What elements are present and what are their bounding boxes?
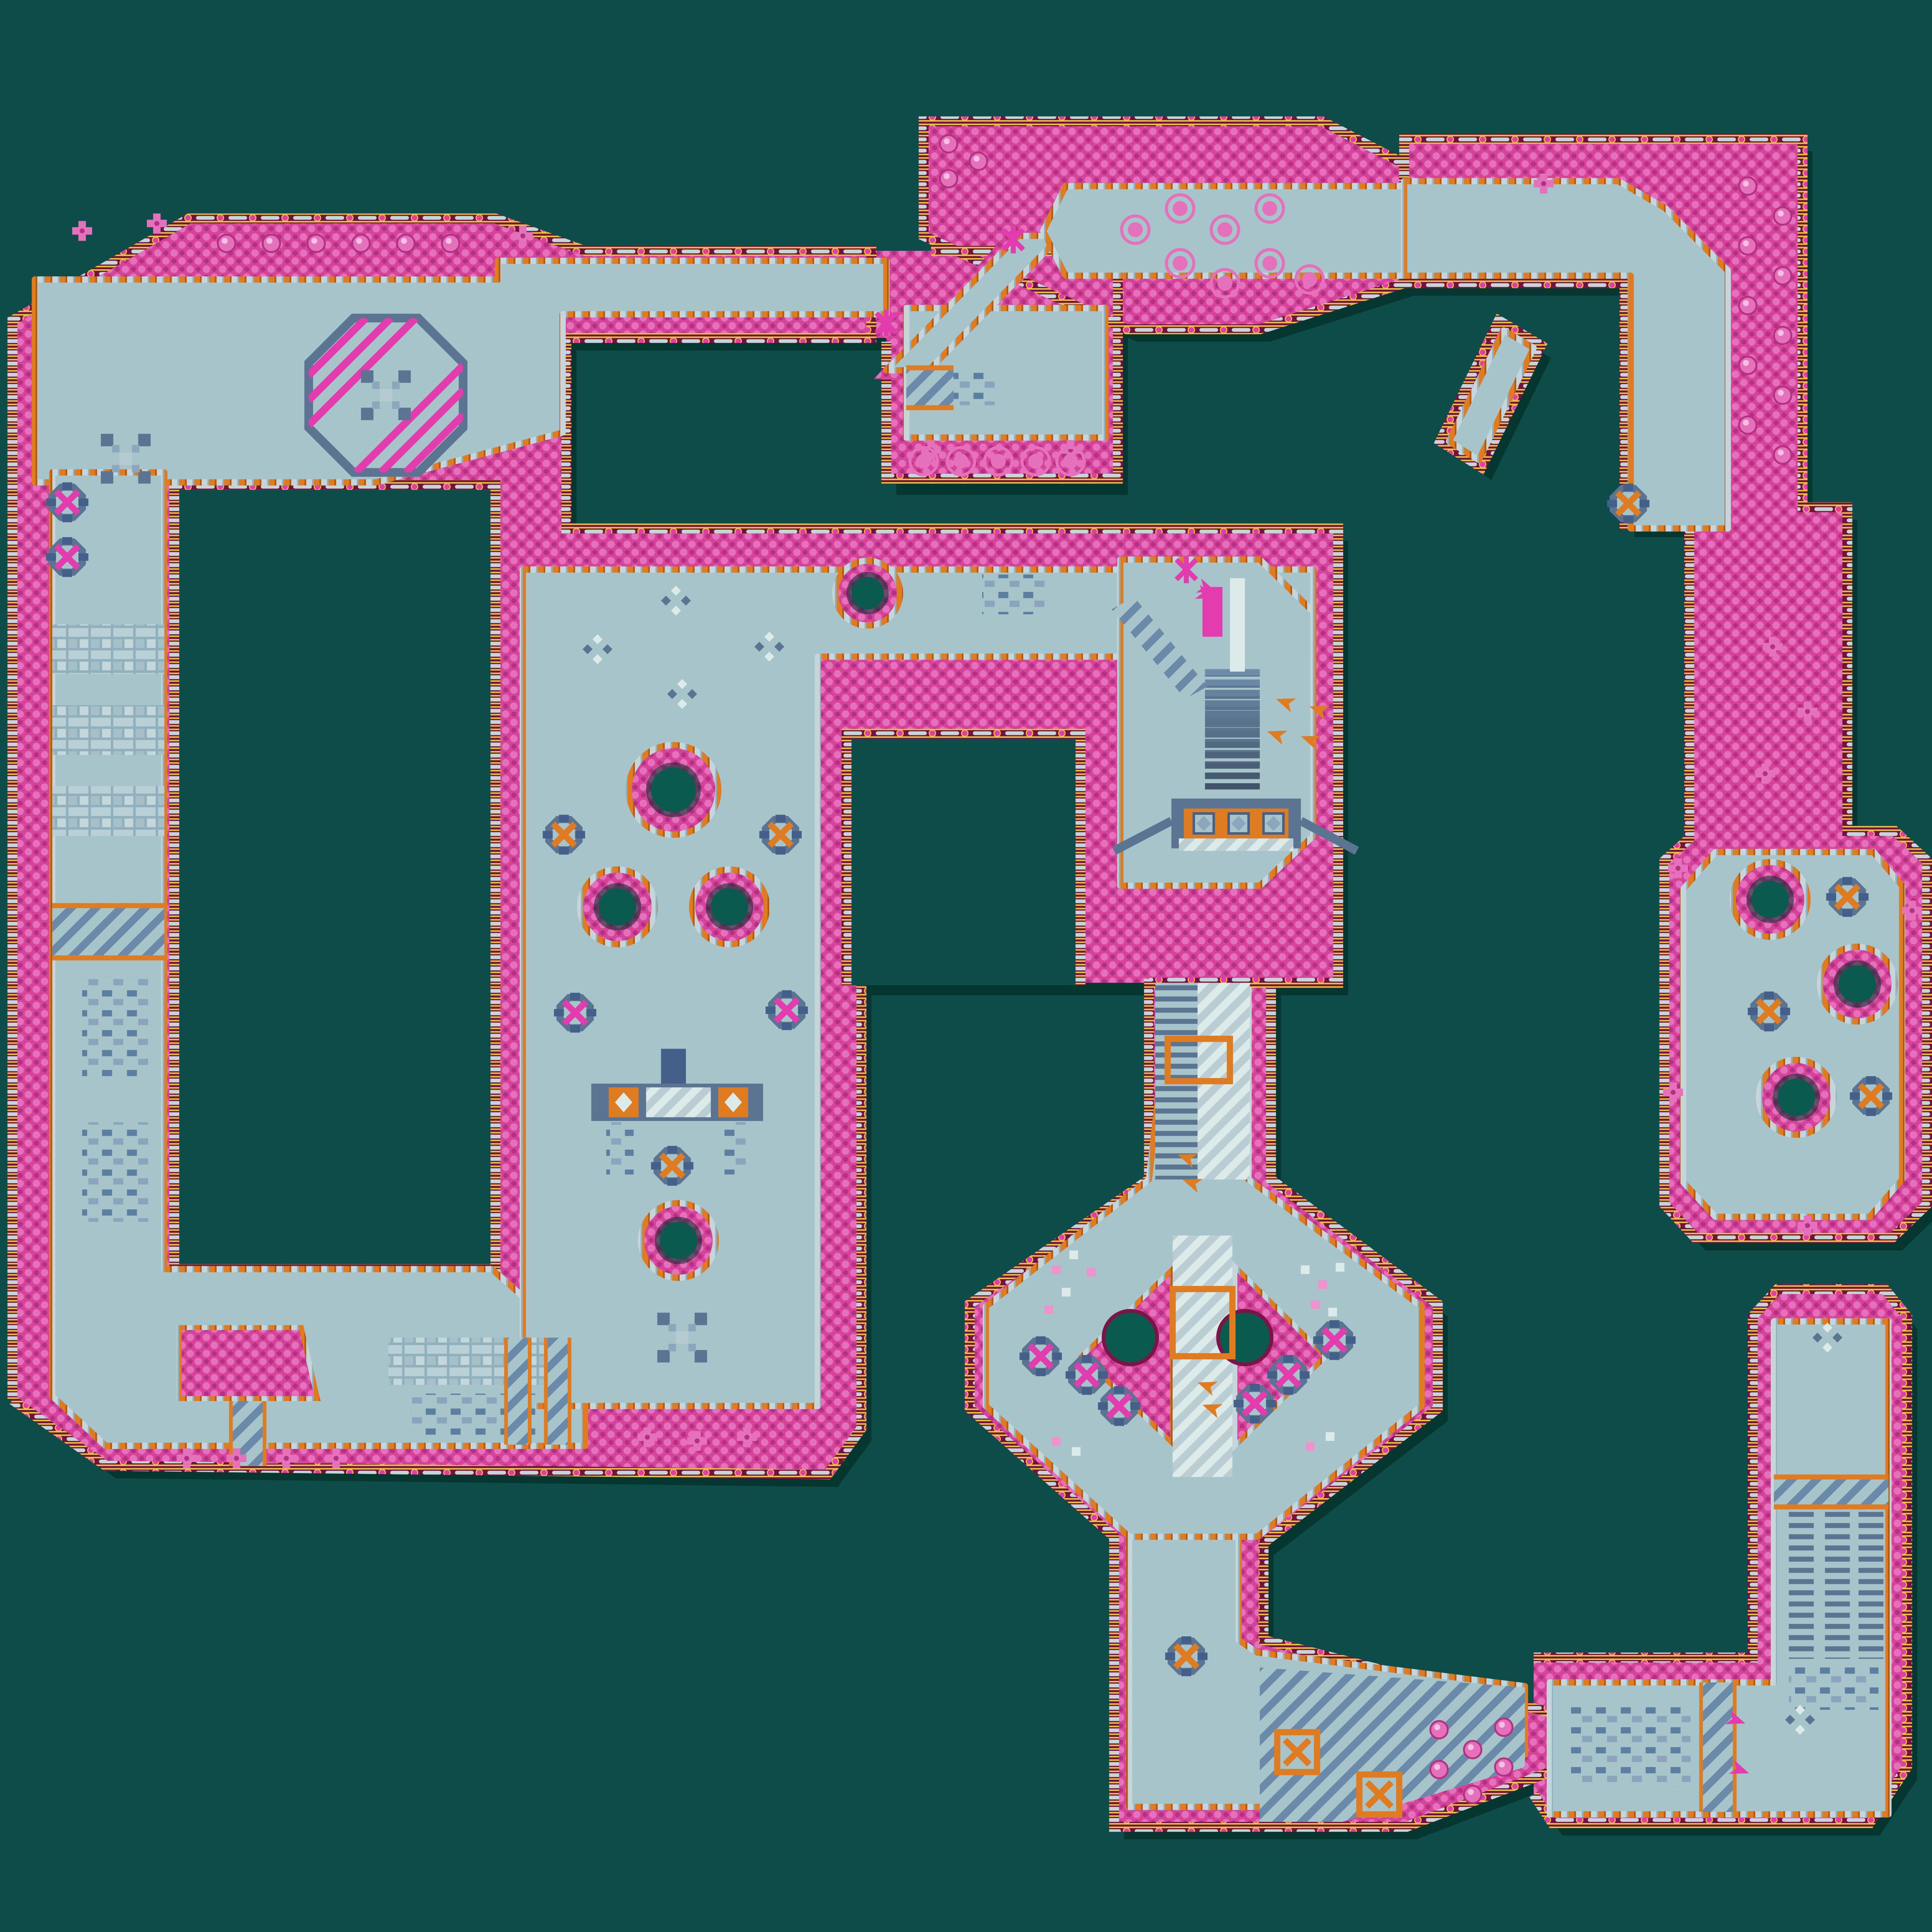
- pit-hole: [852, 577, 884, 609]
- checker-sq: [138, 471, 151, 483]
- dash-band: [82, 976, 152, 1076]
- pole-rail: [528, 1338, 532, 1445]
- item-notch: [1052, 1352, 1062, 1360]
- cross-dot: [1770, 644, 1775, 649]
- item-notch: [1764, 1024, 1774, 1031]
- conveyor-rail: [906, 405, 953, 410]
- tiles-band: [52, 786, 164, 836]
- ladder-band: [1825, 1512, 1850, 1659]
- item-notch: [1266, 1400, 1276, 1407]
- tiles-band: [52, 705, 164, 755]
- item-notch: [559, 815, 569, 822]
- item-notch: [78, 498, 88, 506]
- dome-highlight: [944, 173, 949, 179]
- confetti-square: [1306, 1442, 1315, 1451]
- circle-pad-dome: [1218, 276, 1233, 291]
- item-notch: [684, 1162, 694, 1169]
- middle-courtyard: [847, 734, 1081, 985]
- tower-bar: [1205, 679, 1260, 685]
- pole-rail: [568, 1338, 571, 1445]
- dome-rivet: [1774, 327, 1791, 344]
- pole-rail: [504, 1338, 508, 1445]
- cross-dot: [1805, 1223, 1810, 1228]
- item-notch: [1082, 1388, 1092, 1395]
- dome-rivet: [1495, 1718, 1512, 1736]
- dome-rivet: [263, 235, 280, 252]
- item-notch: [1748, 1008, 1758, 1015]
- dome-rivet: [1430, 1721, 1448, 1738]
- cross-dot: [695, 1439, 700, 1444]
- tower-bar: [1205, 773, 1260, 779]
- cross-dot: [1910, 908, 1915, 913]
- pit-hole: [1838, 965, 1876, 1003]
- dome-rivet: [1739, 357, 1757, 374]
- dash-band: [1571, 1707, 1690, 1787]
- dome-rivet: [1739, 417, 1757, 434]
- machine-antenna: [661, 1049, 686, 1083]
- item-notch: [1866, 1076, 1876, 1083]
- cross-dot: [1541, 181, 1546, 186]
- dome-highlight: [1499, 1762, 1505, 1767]
- cross-dot: [154, 221, 159, 226]
- item-notch: [1036, 1336, 1046, 1344]
- dome-highlight: [1434, 1764, 1440, 1770]
- item-notch: [62, 537, 72, 544]
- checker-sq: [380, 389, 392, 401]
- tiles-band: [52, 624, 164, 674]
- dome-highlight: [1743, 180, 1749, 186]
- item-notch: [1607, 500, 1617, 507]
- item-notch: [798, 1007, 808, 1014]
- pole-body: [508, 1338, 528, 1445]
- item-notch: [1284, 1388, 1294, 1395]
- item-notch: [570, 1025, 580, 1032]
- confetti-square: [1328, 1308, 1337, 1316]
- dash-band: [982, 575, 1044, 614]
- item-notch: [1859, 893, 1869, 901]
- dome-highlight: [356, 238, 362, 244]
- checker-sq: [101, 434, 113, 446]
- foot-platform: [179, 1328, 318, 1399]
- game-map-canvas[interactable]: [0, 0, 1932, 1932]
- item-notch: [1826, 893, 1836, 901]
- circle-pad-dome: [1128, 222, 1143, 237]
- conveyor-rail: [906, 366, 953, 371]
- item-notch: [1066, 1371, 1076, 1379]
- item-notch: [1623, 484, 1633, 491]
- item-notch: [782, 990, 792, 998]
- item-notch: [575, 831, 585, 838]
- cross-dot: [80, 228, 85, 233]
- game-viewport: [0, 0, 1932, 1932]
- conveyor-rail: [1774, 1475, 1888, 1480]
- checker-sq: [372, 381, 379, 389]
- item-notch: [1639, 500, 1650, 507]
- tower-bar: [1205, 711, 1260, 717]
- conveyor-rail: [52, 903, 164, 908]
- confetti-square: [1052, 1265, 1061, 1274]
- checker-sq: [689, 1324, 696, 1331]
- dome-highlight: [1778, 211, 1784, 216]
- dash-band: [954, 368, 996, 405]
- dome-highlight: [1778, 449, 1784, 455]
- dome-highlight: [1743, 300, 1749, 306]
- circle-pad-dome: [1262, 201, 1277, 216]
- checker-sq: [695, 1313, 707, 1325]
- dome-highlight: [1778, 390, 1784, 396]
- checker-sq: [657, 1313, 670, 1325]
- checker-sq: [101, 471, 113, 483]
- confetti-square: [1326, 1432, 1335, 1441]
- confetti-square: [1311, 1300, 1320, 1309]
- dome-highlight: [1778, 330, 1784, 336]
- item-notch: [62, 515, 72, 522]
- dome-rivet: [352, 235, 370, 252]
- dash-band: [721, 1122, 748, 1174]
- item-notch: [1250, 1416, 1260, 1423]
- machine-window: [646, 1087, 711, 1117]
- item-notch: [1623, 516, 1633, 523]
- item-notch: [46, 553, 56, 561]
- item-notch: [1866, 1109, 1876, 1116]
- item-notch: [1284, 1355, 1294, 1362]
- item-notch: [776, 847, 786, 854]
- dome-rivet: [1739, 237, 1757, 255]
- tower-bar: [1205, 690, 1260, 696]
- checker-sq: [361, 408, 373, 420]
- tower-bar: [1205, 742, 1260, 748]
- cross-dot: [234, 1456, 239, 1461]
- dome-highlight: [1743, 420, 1749, 425]
- pole-rail: [1733, 1682, 1737, 1812]
- item-notch: [1299, 1371, 1310, 1379]
- checker-sq: [392, 381, 400, 389]
- circle-pad-dome: [1262, 256, 1277, 271]
- circle-pad-dome: [1173, 256, 1188, 271]
- circle-pad-dome: [1028, 454, 1043, 469]
- dome-highlight: [222, 238, 228, 244]
- dome-highlight: [1743, 240, 1749, 246]
- circle-pad-dome: [1218, 222, 1233, 237]
- dome-rivet: [1774, 446, 1791, 464]
- dome-highlight: [401, 238, 407, 244]
- dome-highlight: [1743, 360, 1749, 366]
- dome-rivet: [940, 135, 957, 153]
- dome-highlight: [1499, 1722, 1505, 1728]
- dome-highlight: [1468, 1789, 1474, 1795]
- dome-rivet: [397, 235, 415, 252]
- item-notch: [1165, 1653, 1175, 1660]
- checker-sq: [112, 465, 119, 472]
- checker-sq: [676, 1332, 688, 1344]
- checker-sq: [361, 370, 373, 383]
- checker-sq: [668, 1324, 676, 1331]
- item-notch: [1842, 877, 1852, 884]
- item-notch: [1181, 1636, 1191, 1644]
- checker-sq: [138, 434, 151, 446]
- dash-band: [1789, 1665, 1879, 1710]
- dome-rivet: [1774, 207, 1791, 224]
- checker-sq: [392, 401, 400, 409]
- dome-rivet: [1739, 177, 1757, 195]
- pole-rail: [544, 1338, 548, 1445]
- x-pad: [1359, 1774, 1399, 1814]
- item-notch: [1313, 1336, 1323, 1344]
- pit-hole: [1105, 1313, 1155, 1362]
- item-notch: [554, 1009, 564, 1016]
- tower-bar: [1205, 783, 1260, 789]
- checker-sq: [119, 452, 132, 465]
- striped-pole: [1699, 1682, 1737, 1812]
- cross-dot: [1763, 771, 1768, 776]
- cross-dot: [333, 1456, 338, 1461]
- tower-bar: [1205, 752, 1260, 758]
- confetti-square: [1336, 1263, 1345, 1272]
- dome-rivet: [308, 235, 325, 252]
- ladder-band: [1859, 1512, 1883, 1659]
- item-notch: [1330, 1352, 1340, 1360]
- dome-highlight: [1468, 1744, 1474, 1750]
- ladder-band: [1789, 1512, 1814, 1659]
- circle-pad-dome: [991, 454, 1006, 469]
- checker-sq: [695, 1350, 707, 1362]
- checker-sq: [112, 445, 119, 452]
- cross-dot: [184, 1456, 189, 1461]
- tiles-band: [388, 1338, 570, 1385]
- checker-sq: [398, 370, 411, 383]
- convH-band: [1774, 1475, 1888, 1509]
- item-notch: [776, 815, 786, 822]
- item-notch: [78, 553, 88, 561]
- dome-rivet: [970, 153, 987, 170]
- cross-dot: [1670, 1090, 1675, 1095]
- item-notch: [1098, 1371, 1108, 1379]
- x-pad: [1277, 1732, 1317, 1772]
- dome-rivet: [1464, 1786, 1481, 1803]
- pole-body: [1703, 1682, 1733, 1812]
- dome-highlight: [1434, 1724, 1440, 1730]
- circle-pad-dome: [916, 454, 931, 469]
- conveyor-rail: [1774, 1504, 1888, 1509]
- pit-hole: [1752, 881, 1789, 918]
- dome-rivet: [1464, 1741, 1481, 1758]
- pit-hole: [599, 888, 636, 926]
- item-notch: [1114, 1386, 1124, 1393]
- item-notch: [1114, 1418, 1124, 1426]
- tower-skirt: [1179, 838, 1293, 851]
- item-notch: [651, 1162, 661, 1169]
- item-notch: [1082, 1355, 1092, 1362]
- item-notch: [1098, 1402, 1108, 1410]
- item-notch: [792, 831, 802, 838]
- cross-dot: [284, 1456, 289, 1461]
- pole-rail: [263, 1399, 267, 1466]
- dome-highlight: [944, 138, 949, 144]
- dome-rivet: [1774, 386, 1791, 404]
- circle-pad-dome: [954, 454, 969, 469]
- item-notch: [1130, 1402, 1140, 1410]
- checker-sq: [657, 1350, 670, 1362]
- striped-pole: [544, 1338, 571, 1445]
- item-notch: [1780, 1008, 1790, 1015]
- checker-sq: [689, 1344, 696, 1351]
- item-notch: [586, 1009, 596, 1016]
- confetti-square: [1044, 1305, 1053, 1314]
- cross-dot: [1805, 709, 1810, 714]
- checker-sq: [132, 465, 139, 472]
- tower-bar: [1205, 721, 1260, 727]
- dome-highlight: [974, 156, 980, 162]
- dome-rivet: [940, 170, 957, 187]
- tower-bar: [1205, 731, 1260, 738]
- dome-rivet: [1430, 1761, 1448, 1778]
- item-notch: [1764, 992, 1774, 999]
- dome-highlight: [446, 238, 452, 244]
- checker-sq: [372, 401, 379, 409]
- item-notch: [667, 1146, 677, 1153]
- dome-highlight: [267, 238, 272, 244]
- pit-hole: [1778, 1079, 1815, 1116]
- checker-sq: [132, 445, 139, 452]
- conveyor-rail: [52, 956, 164, 961]
- item-notch: [1346, 1336, 1356, 1344]
- dome-rivet: [1495, 1759, 1512, 1776]
- dome-rivet: [218, 235, 235, 252]
- confetti-square: [1062, 1288, 1071, 1297]
- pole-rail: [1699, 1682, 1703, 1812]
- confetti-square: [1072, 1447, 1081, 1456]
- item-notch: [62, 482, 72, 490]
- item-notch: [667, 1178, 677, 1185]
- item-notch: [1330, 1320, 1340, 1328]
- dome-highlight: [1778, 270, 1784, 276]
- convH-band: [52, 903, 164, 960]
- pit-hole: [651, 767, 696, 812]
- west-courtyard: [174, 485, 495, 1269]
- item-notch: [1020, 1352, 1030, 1360]
- pole-body: [548, 1338, 568, 1445]
- item-notch: [1234, 1400, 1244, 1407]
- item-notch: [543, 831, 553, 838]
- striped-pole: [504, 1338, 532, 1445]
- tower-mast: [1230, 578, 1245, 672]
- confetti-square: [1087, 1268, 1096, 1277]
- dash-band: [82, 1122, 152, 1222]
- item-notch: [759, 831, 769, 838]
- confetti-square: [1052, 1437, 1061, 1446]
- tower-bar: [1205, 762, 1260, 769]
- item-notch: [765, 1007, 776, 1014]
- item-notch: [46, 498, 56, 506]
- item-notch: [1267, 1371, 1277, 1379]
- dome-rivet: [1774, 267, 1791, 284]
- dome-rivet: [1739, 297, 1757, 314]
- confetti-square: [1301, 1265, 1310, 1274]
- item-notch: [570, 993, 580, 1000]
- item-notch: [1842, 909, 1852, 917]
- confetti-square: [1069, 1250, 1078, 1259]
- item-notch: [782, 1023, 792, 1030]
- checker-sq: [398, 408, 411, 420]
- item-notch: [1036, 1369, 1046, 1376]
- dome-rivet: [442, 235, 459, 252]
- item-notch: [1882, 1092, 1892, 1100]
- convH-band: [906, 366, 953, 410]
- pit-hole: [711, 888, 748, 926]
- item-notch: [1250, 1384, 1260, 1391]
- cross-dot: [645, 1435, 650, 1440]
- confetti-square: [1318, 1280, 1327, 1289]
- dash-band: [606, 1122, 634, 1174]
- circle-pad-dome: [1302, 272, 1317, 287]
- item-notch: [559, 847, 569, 854]
- item-notch: [1197, 1653, 1207, 1660]
- dome-highlight: [311, 238, 317, 244]
- item-notch: [1850, 1092, 1860, 1100]
- cross-dot: [520, 233, 526, 238]
- pit-hole: [660, 1222, 697, 1259]
- cross-dot: [1675, 866, 1680, 871]
- item-notch: [62, 570, 72, 577]
- tower-bar: [1205, 700, 1260, 706]
- item-notch: [1181, 1669, 1191, 1676]
- circle-pad-dome: [1063, 454, 1078, 469]
- cross-dot: [745, 1435, 750, 1440]
- checker-sq: [668, 1344, 676, 1351]
- circle-pad-dome: [1173, 201, 1188, 216]
